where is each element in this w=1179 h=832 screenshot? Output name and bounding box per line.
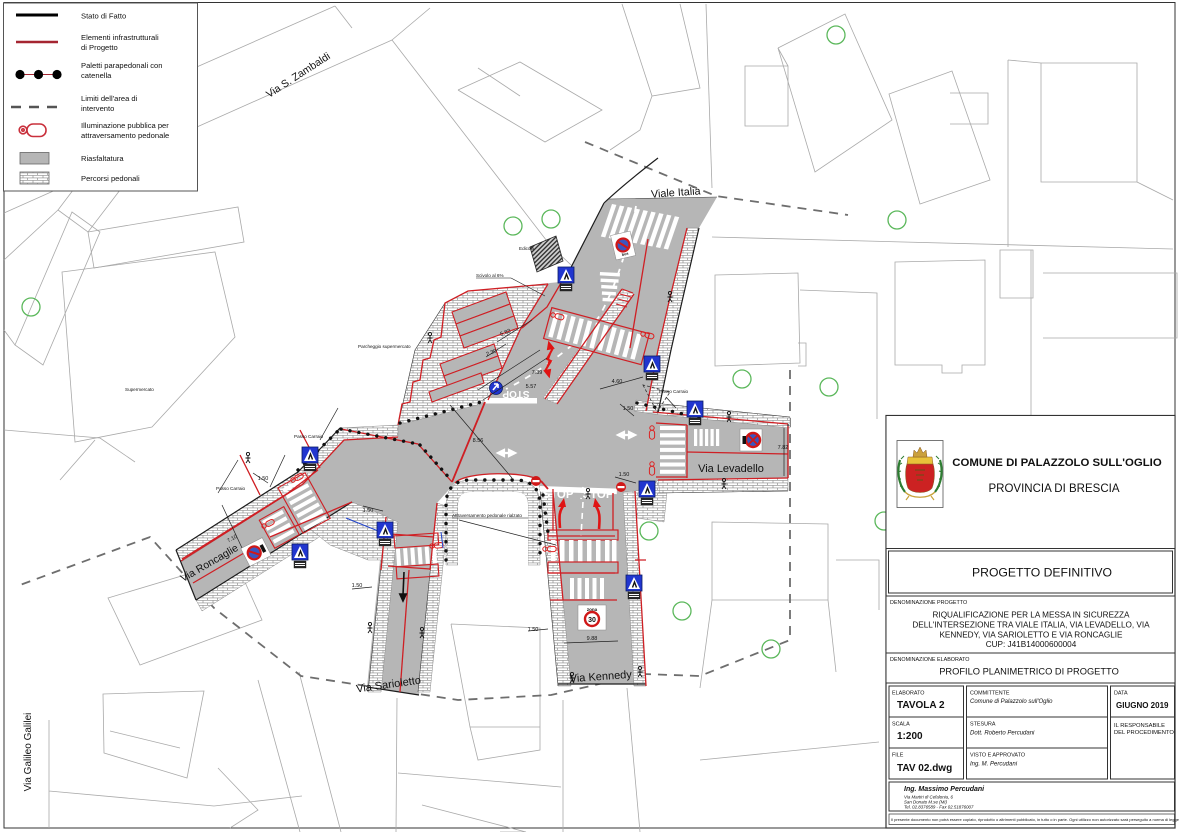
svg-text:Illuminazione pubblica per: Illuminazione pubblica per xyxy=(81,121,169,130)
svg-text:catenella: catenella xyxy=(81,71,112,80)
svg-text:Parcheggio supermercato: Parcheggio supermercato xyxy=(358,344,411,349)
svg-text:STOP: STOP xyxy=(542,489,573,501)
svg-text:1.50: 1.50 xyxy=(528,627,539,633)
svg-text:Comune di Palazzolo sull'Oglio: Comune di Palazzolo sull'Oglio xyxy=(970,699,1053,705)
svg-text:Attraversamento pedonale rialz: Attraversamento pedonale rialzato xyxy=(452,513,522,518)
svg-text:TAVOLA 2: TAVOLA 2 xyxy=(897,700,945,711)
svg-text:DENOMINAZIONE PROGETTO: DENOMINAZIONE PROGETTO xyxy=(890,600,967,606)
svg-text:Edicola: Edicola xyxy=(519,246,535,251)
svg-text:Via Galileo Galilei: Via Galileo Galilei xyxy=(23,713,34,792)
svg-text:8.56: 8.56 xyxy=(473,438,484,444)
svg-text:IL RESPONSABILE: IL RESPONSABILE xyxy=(1114,723,1165,729)
svg-text:1.50: 1.50 xyxy=(619,472,630,478)
svg-text:GIUGNO 2019: GIUGNO 2019 xyxy=(1116,701,1169,710)
svg-text:KENNEDY, VIA SARIOLETTO E VIA: KENNEDY, VIA SARIOLETTO E VIA RONCAGLIE xyxy=(939,631,1123,640)
svg-text:Ing. Massimo Percudani: Ing. Massimo Percudani xyxy=(904,786,985,793)
svg-text:7.82: 7.82 xyxy=(778,445,789,451)
svg-text:Dott. Roberto Percudani: Dott. Roberto Percudani xyxy=(970,731,1035,737)
svg-text:COMUNE DI PALAZZOLO SULL'OGLIO: COMUNE DI PALAZZOLO SULL'OGLIO xyxy=(952,457,1162,469)
svg-text:Il presente documento non potr: Il presente documento non potrà essere c… xyxy=(891,817,1179,822)
svg-text:30: 30 xyxy=(588,617,596,624)
svg-text:1.50: 1.50 xyxy=(623,406,634,412)
svg-text:DENOMINAZIONE ELABORATO: DENOMINAZIONE ELABORATO xyxy=(890,657,969,663)
svg-text:Scivolo al 6%: Scivolo al 6% xyxy=(476,273,504,278)
svg-text:intervento: intervento xyxy=(81,104,114,113)
svg-text:STESURA: STESURA xyxy=(970,722,996,728)
svg-text:Passo Carraio: Passo Carraio xyxy=(216,486,246,491)
svg-text:1.50: 1.50 xyxy=(363,508,374,514)
svg-text:Riasfaltatura: Riasfaltatura xyxy=(81,154,124,163)
svg-text:PROFILO PLANIMETRICO DI PROGET: PROFILO PLANIMETRICO DI PROGETTO xyxy=(939,667,1119,677)
svg-text:Tel. 02.8376589 - Fax 02.51876: Tel. 02.8376589 - Fax 02.51876007 xyxy=(904,805,974,810)
svg-text:DEL PROCEDIMENTO: DEL PROCEDIMENTO xyxy=(1114,730,1174,736)
svg-text:DELL'INTERSEZIONE TRA VIALE IT: DELL'INTERSEZIONE TRA VIALE ITALIA, VIA … xyxy=(912,621,1150,630)
svg-text:CUP: J41B14000600004: CUP: J41B14000600004 xyxy=(986,640,1077,649)
svg-text:PROVINCIA DI BRESCIA: PROVINCIA DI BRESCIA xyxy=(988,483,1119,495)
svg-text:Limiti dell'area di: Limiti dell'area di xyxy=(81,94,138,103)
svg-text:ELABORATO: ELABORATO xyxy=(892,691,924,697)
svg-text:Passo Carraio: Passo Carraio xyxy=(294,434,324,439)
svg-text:PROGETTO DEFINITIVO: PROGETTO DEFINITIVO xyxy=(972,566,1112,580)
svg-text:5.57: 5.57 xyxy=(526,384,537,390)
svg-text:4.60: 4.60 xyxy=(612,379,623,385)
svg-text:FILE: FILE xyxy=(892,753,904,759)
svg-text:Percorsi pedonali: Percorsi pedonali xyxy=(81,174,140,183)
svg-text:1.50: 1.50 xyxy=(352,583,363,589)
svg-text:attraversamento pedonale: attraversamento pedonale xyxy=(81,131,169,140)
svg-text:Via Levadello: Via Levadello xyxy=(698,463,764,475)
svg-text:Stato di Fatto: Stato di Fatto xyxy=(81,12,126,21)
svg-text:DATA: DATA xyxy=(1114,691,1128,697)
svg-text:1:200: 1:200 xyxy=(897,731,923,742)
svg-text:Elementi infrastrutturali: Elementi infrastrutturali xyxy=(81,33,159,42)
svg-text:7.39: 7.39 xyxy=(532,370,543,376)
svg-text:9.88: 9.88 xyxy=(587,636,598,642)
svg-text:Ing. M. Percudani: Ing. M. Percudani xyxy=(970,762,1018,768)
svg-text:VISTO E APPROVATO: VISTO E APPROVATO xyxy=(970,753,1025,759)
svg-text:1.50: 1.50 xyxy=(258,476,269,482)
svg-text:TAV 02.dwg: TAV 02.dwg xyxy=(897,763,952,774)
svg-text:SCALA: SCALA xyxy=(892,722,910,728)
svg-text:Paletti parapedonali con: Paletti parapedonali con xyxy=(81,61,162,70)
svg-text:COMMITTENTE: COMMITTENTE xyxy=(970,691,1010,697)
svg-text:Passo Carraio: Passo Carraio xyxy=(659,389,689,394)
svg-text:RIQUALIFICAZIONE PER LA MESSA: RIQUALIFICAZIONE PER LA MESSA IN SICUREZ… xyxy=(933,611,1131,620)
svg-text:Supermercato: Supermercato xyxy=(125,387,154,392)
svg-text:di Progetto: di Progetto xyxy=(81,43,118,52)
